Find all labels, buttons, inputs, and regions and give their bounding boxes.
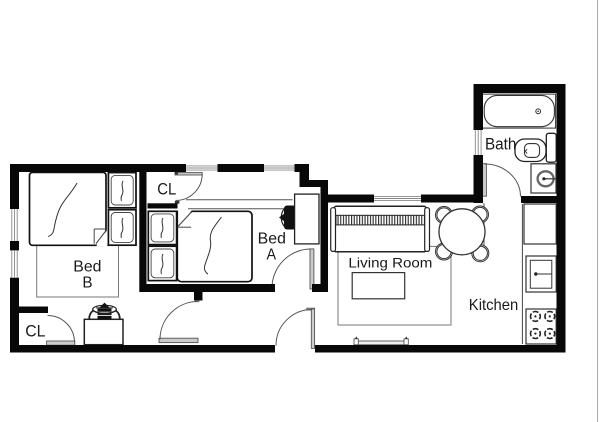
svg-text:Kitchen: Kitchen bbox=[469, 297, 519, 314]
svg-text:A: A bbox=[267, 246, 277, 263]
svg-text:Living Room: Living Room bbox=[348, 256, 432, 272]
svg-text:Bed: Bed bbox=[258, 231, 286, 248]
svg-text:B: B bbox=[82, 274, 92, 291]
svg-text:CL: CL bbox=[157, 180, 176, 199]
svg-text:Bath: Bath bbox=[485, 135, 516, 153]
svg-text:Bed: Bed bbox=[73, 258, 101, 275]
svg-text:CL: CL bbox=[25, 322, 45, 341]
